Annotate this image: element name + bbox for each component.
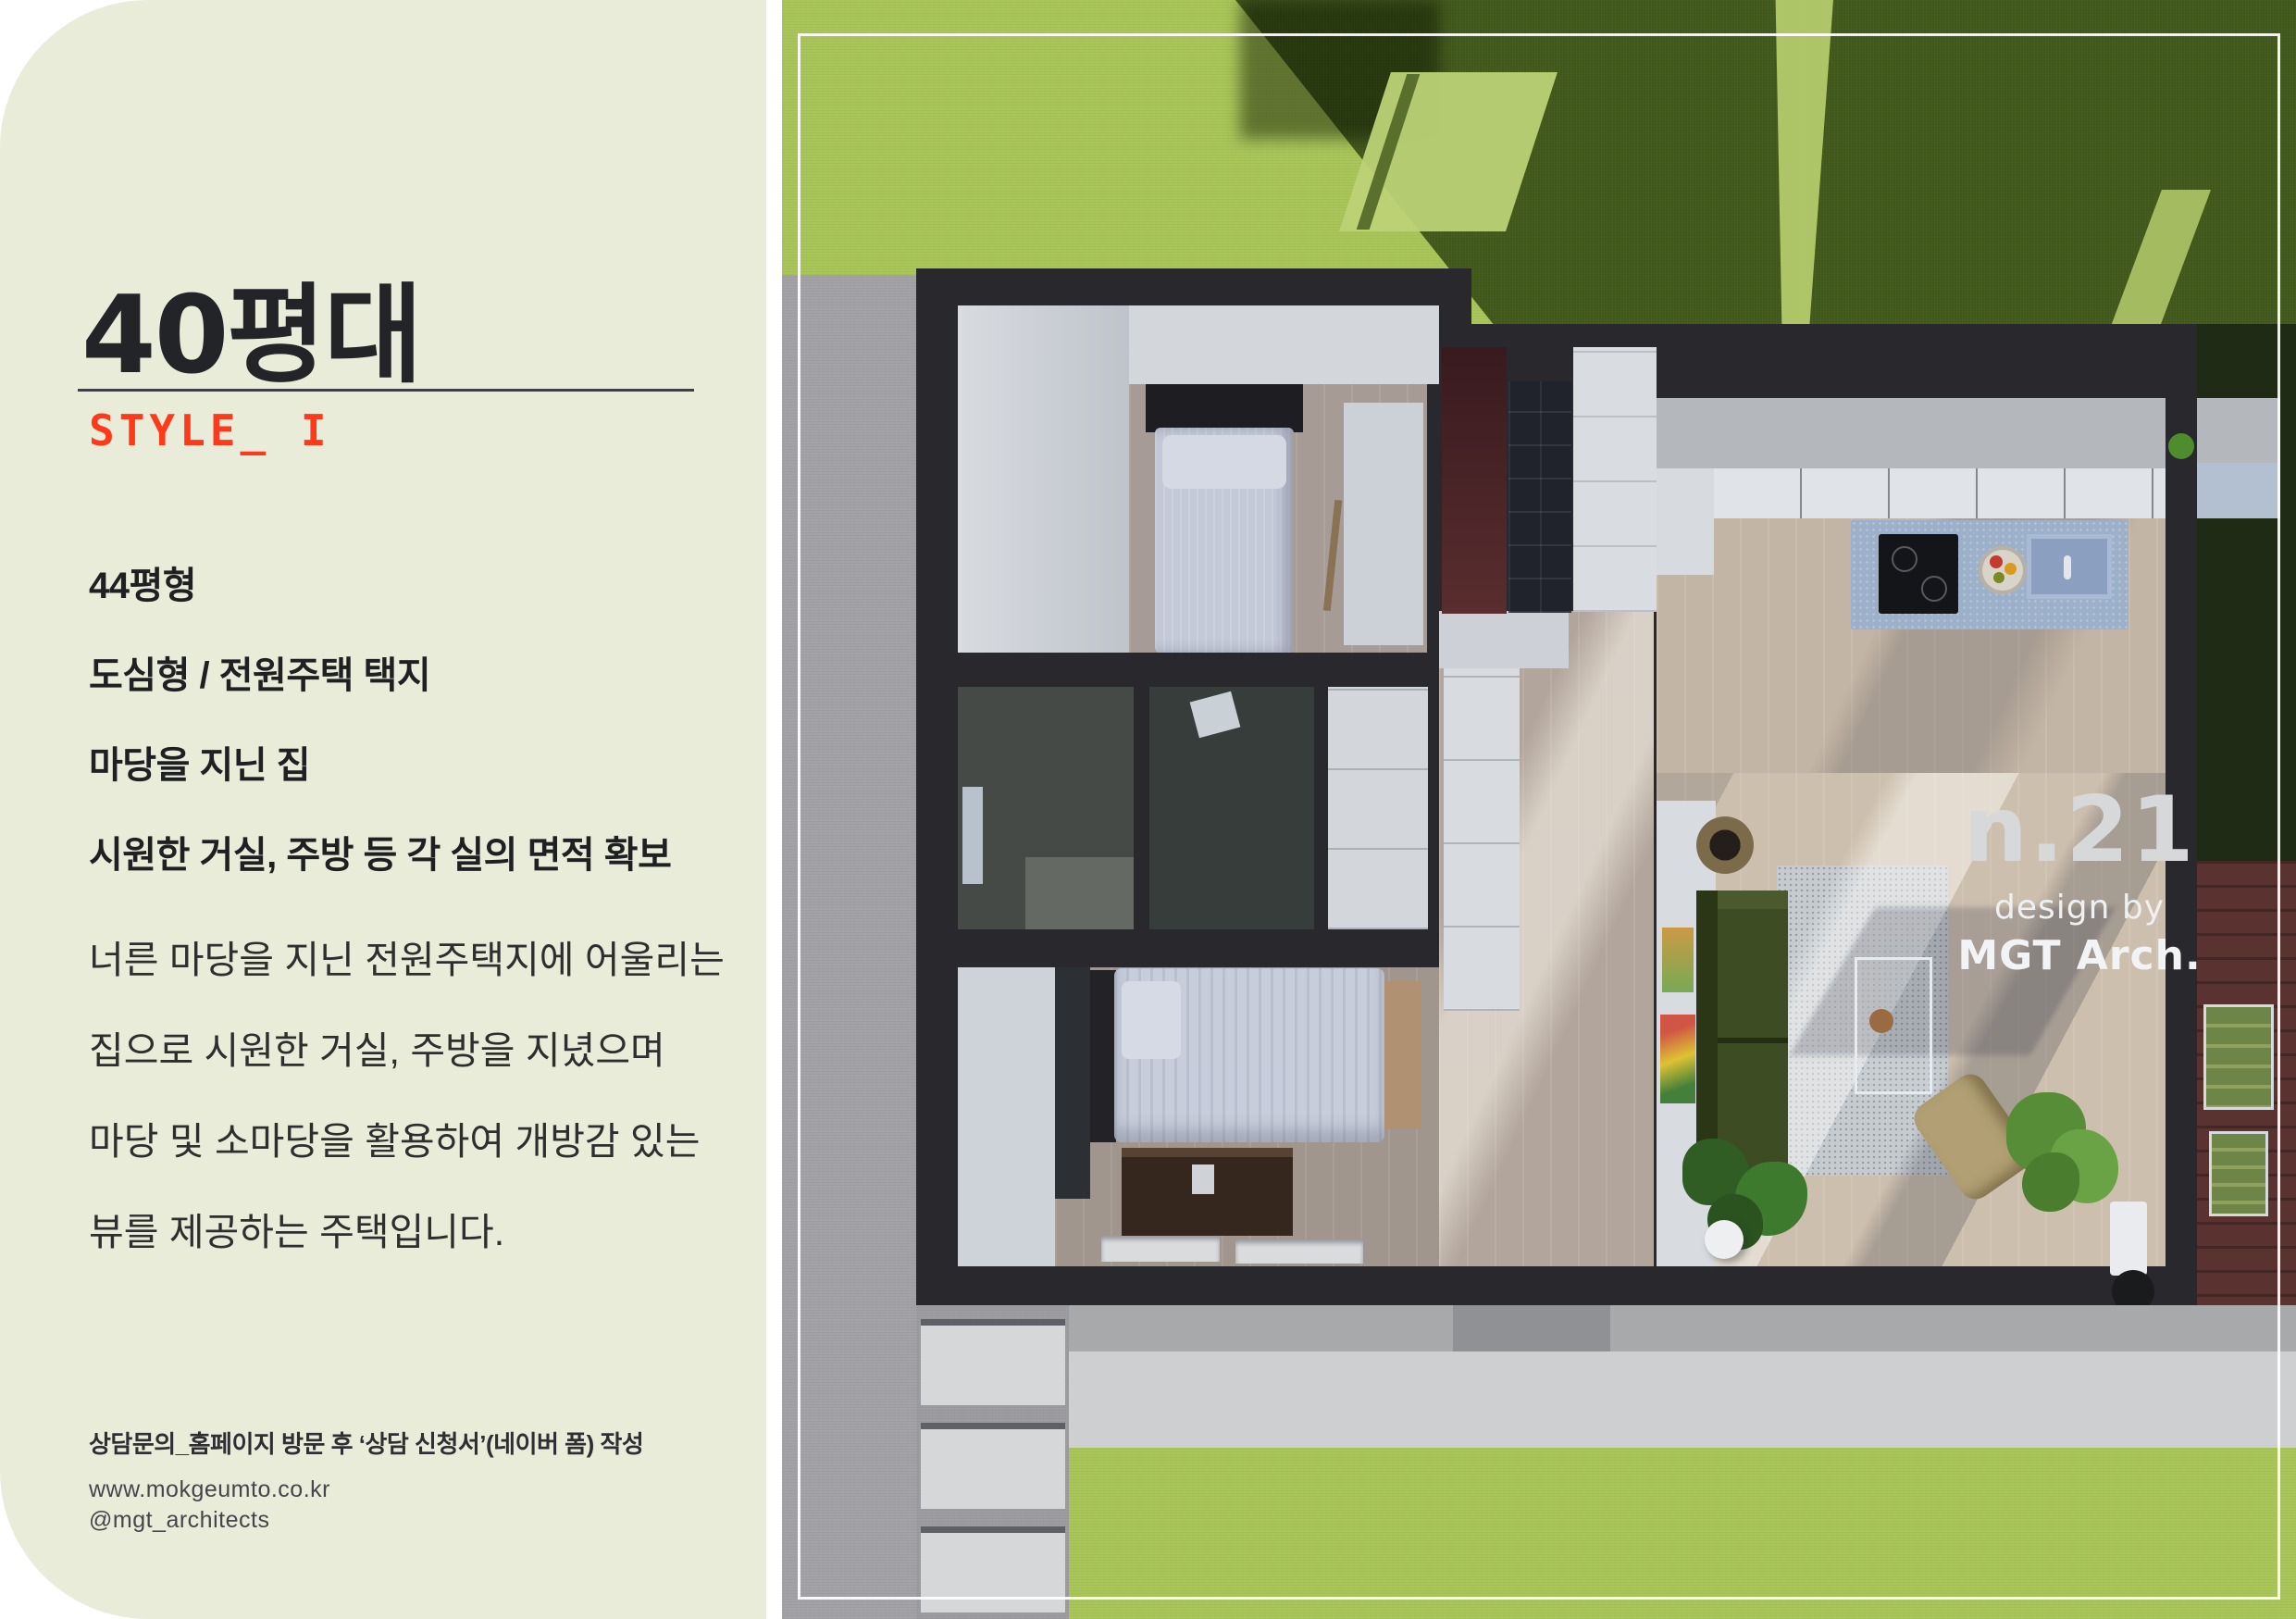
- design-number: n.21: [1950, 785, 2209, 876]
- feature-list: 44평형 도심형 / 전원주택 택지 마당을 지닌 집 시원한 거실, 주방 등…: [89, 542, 671, 901]
- info-panel: 40평대 STYLE_ I 44평형 도심형 / 전원주택 택지 마당을 지닌 …: [0, 0, 766, 1619]
- bathroom-bench: [1025, 857, 1134, 929]
- accent-wall-maroon: [1442, 347, 1507, 614]
- instagram-handle: @mgt_architects: [89, 1505, 643, 1536]
- dresser-note: [1192, 1164, 1214, 1194]
- indoor-plant: [2022, 1152, 2079, 1212]
- bed-wood-trim: [1384, 981, 1421, 1129]
- poster: [1662, 928, 1694, 992]
- stepping-stone: [921, 1429, 1065, 1509]
- bathroom-window: [962, 787, 983, 884]
- feature-item: 도심형 / 전원주택 택지: [89, 631, 671, 721]
- faucet: [2064, 555, 2071, 579]
- floor-lamp: [1705, 1220, 1744, 1259]
- poster: [1660, 1015, 1695, 1103]
- description-line: 집으로 시원한 거실, 주방을 지녔으며: [89, 1005, 725, 1096]
- description-line: 마당 및 소마당을 활용하여 개방감 있는: [89, 1096, 725, 1187]
- entry-hall: [1573, 347, 1657, 612]
- concrete-path: [782, 275, 916, 1619]
- window-bay-sill: [2197, 463, 2280, 518]
- feature-item: 마당을 지닌 집: [89, 721, 671, 811]
- cooktop-burner: [1892, 546, 1917, 572]
- terrace-step-lower: [1069, 1351, 2296, 1448]
- panel-footer: 상담문의_홈페이지 방문 후 ‘상담 신청서’(네이버 폼) 작성 www.mo…: [89, 1426, 643, 1536]
- description-paragraph: 너른 마당을 지닌 전원주택지에 어울리는 집으로 시원한 거실, 주방을 지녔…: [89, 915, 725, 1277]
- bed-headboard: [1090, 970, 1116, 1142]
- kitchen-cabinets: [1712, 468, 2166, 518]
- stepping-stone: [921, 1533, 1065, 1613]
- bedroom1-west-wall: [958, 305, 1129, 653]
- page-title: 40평대: [81, 248, 421, 404]
- table-plate: [1869, 1009, 1893, 1033]
- closet: [1344, 403, 1423, 645]
- bathroom-closet: [1328, 687, 1428, 929]
- fruit: [1993, 572, 2004, 583]
- kitchen-counter: [1657, 398, 2166, 468]
- feature-item: 시원한 거실, 주방 등 각 실의 면적 확보: [89, 811, 671, 901]
- pillow: [1122, 981, 1181, 1059]
- hall-wardrobe: [1444, 668, 1520, 1011]
- coffee-table: [1855, 957, 1932, 1094]
- fruit: [1990, 555, 2003, 568]
- bedroom1-headboard-nook: [1146, 384, 1303, 432]
- wall-clock: [1696, 816, 1754, 874]
- shower-tiles: [1508, 381, 1571, 613]
- floor-window: [1235, 1239, 1363, 1264]
- floor-window: [1101, 1236, 1220, 1262]
- fruit: [2004, 563, 2017, 575]
- design-badge: n.21 design by MGT Arch.: [1950, 785, 2209, 979]
- counter-plant: [2168, 433, 2194, 459]
- bedroom2-accent-wall: [1055, 967, 1090, 1199]
- planter: [2110, 1202, 2147, 1276]
- description-line: 너른 마당을 지닌 전원주택지에 어울리는: [89, 915, 725, 1005]
- lounge-chair: [2209, 1131, 2268, 1216]
- window-bay-counter: [2197, 398, 2280, 463]
- backyard-grass: [1069, 1448, 2296, 1619]
- terrace-step-upper: [1069, 1303, 2296, 1351]
- corridor-top-wall: [1439, 611, 1569, 668]
- design-studio: MGT Arch.: [1950, 932, 2209, 979]
- cooktop: [1879, 534, 1958, 614]
- feature-item: 44평형: [89, 542, 671, 631]
- fruit-bowl: [1979, 546, 2027, 594]
- bedroom2-west-wall: [958, 967, 1055, 1266]
- title-underline: [78, 389, 694, 392]
- poster-canvas: 40평대 STYLE_ I 44평형 도심형 / 전원주택 택지 마당을 지닌 …: [0, 0, 2296, 1619]
- pillow: [1162, 435, 1286, 489]
- design-byline: design by: [1950, 889, 2209, 927]
- floorplan-render: n.21 design by MGT Arch.: [782, 0, 2296, 1619]
- lounge-chair: [2203, 1004, 2274, 1110]
- kitchen-tall-cabinet: [1657, 468, 1714, 575]
- stepping-stone: [921, 1326, 1065, 1405]
- contact-info: 상담문의_홈페이지 방문 후 ‘상담 신청서’(네이버 폼) 작성: [89, 1426, 643, 1460]
- style-label: STYLE_ I: [89, 405, 331, 455]
- cooktop-burner: [1921, 576, 1947, 602]
- description-line: 뷰를 제공하는 주택입니다.: [89, 1187, 725, 1277]
- website-url: www.mokgeumto.co.kr: [89, 1475, 643, 1505]
